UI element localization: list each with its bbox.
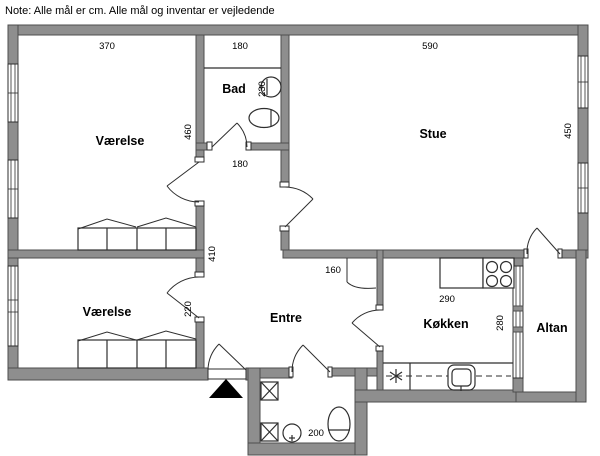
toilet-icon: [328, 407, 350, 441]
door-jamb: [280, 226, 289, 231]
shaft-icon: [261, 423, 278, 441]
dimension-label: 160: [325, 265, 341, 276]
room-label: Værelse: [96, 134, 145, 148]
note-text: Note: Alle mål er cm. Alle mål og invent…: [5, 5, 275, 17]
dimension-label: 230: [257, 81, 268, 97]
wall: [8, 250, 204, 258]
floor-plan-page: Note: Alle mål er cm. Alle mål og invent…: [0, 0, 600, 456]
wall: [377, 347, 383, 390]
door-swing: [212, 123, 247, 147]
door-jamb: [195, 272, 204, 277]
door-swing: [292, 345, 330, 372]
dimension-label: 460: [183, 124, 194, 140]
kitchen-sink-icon: [448, 365, 475, 391]
floor-plan: Note: Alle mål er cm. Alle mål og invent…: [0, 0, 600, 456]
wall: [281, 35, 289, 187]
wall: [330, 368, 377, 376]
toilet-icon: [249, 109, 279, 128]
wall: [8, 25, 588, 35]
wardrobe-icon: [78, 331, 196, 368]
door-swing: [527, 228, 560, 254]
wall: [576, 250, 586, 402]
dimension-label: 370: [99, 41, 115, 52]
wall: [355, 390, 516, 402]
window: [8, 266, 18, 346]
window: [8, 64, 18, 122]
dimension-label: 410: [207, 246, 218, 262]
wall: [283, 250, 527, 258]
door-swing: [285, 187, 313, 227]
door-swing: [167, 162, 199, 202]
dimension-label: 200: [308, 428, 324, 439]
room-label: Bad: [222, 82, 246, 96]
door-swing: [208, 344, 246, 370]
dimension-label: 590: [422, 41, 438, 52]
room-label: Altan: [536, 321, 567, 335]
wall: [196, 318, 204, 368]
room-label: Værelse: [83, 305, 132, 319]
room-label: Entre: [270, 311, 302, 325]
wall: [248, 443, 367, 455]
entrance-door-leaf: [208, 369, 246, 379]
door-jamb: [376, 305, 383, 310]
wardrobe-icon: [78, 218, 196, 250]
entrance-arrow-icon: [209, 379, 243, 398]
room-label: Køkken: [423, 317, 468, 331]
closet-door: [347, 258, 376, 288]
dimension-label: 280: [495, 315, 506, 331]
dimension-label: 180: [232, 159, 248, 170]
window: [8, 160, 18, 218]
door-jamb: [280, 182, 289, 187]
window: [578, 56, 588, 108]
room-label: Stue: [419, 127, 446, 141]
dimension-label: 220: [183, 301, 194, 317]
window: [578, 163, 588, 213]
wall: [355, 368, 367, 455]
door-jamb: [195, 317, 204, 322]
wall: [377, 250, 383, 310]
shaft-icon: [261, 382, 278, 400]
dimension-label: 290: [439, 294, 455, 305]
room-labels: Værelse Bad Stue Værelse Entre Køkken Al…: [83, 82, 568, 335]
wall: [513, 378, 523, 392]
wall: [248, 368, 260, 455]
floor-drain-icon: [283, 424, 301, 442]
stove-icon: [483, 258, 514, 288]
wall: [247, 143, 289, 150]
door-swing: [352, 310, 380, 347]
dimension-label: 180: [232, 41, 248, 52]
door-jamb: [195, 157, 204, 162]
wall: [196, 202, 204, 250]
dimension-label: 450: [563, 123, 574, 139]
kitchen-counter: [440, 258, 483, 288]
wall: [8, 368, 208, 380]
door-jamb: [207, 142, 212, 150]
